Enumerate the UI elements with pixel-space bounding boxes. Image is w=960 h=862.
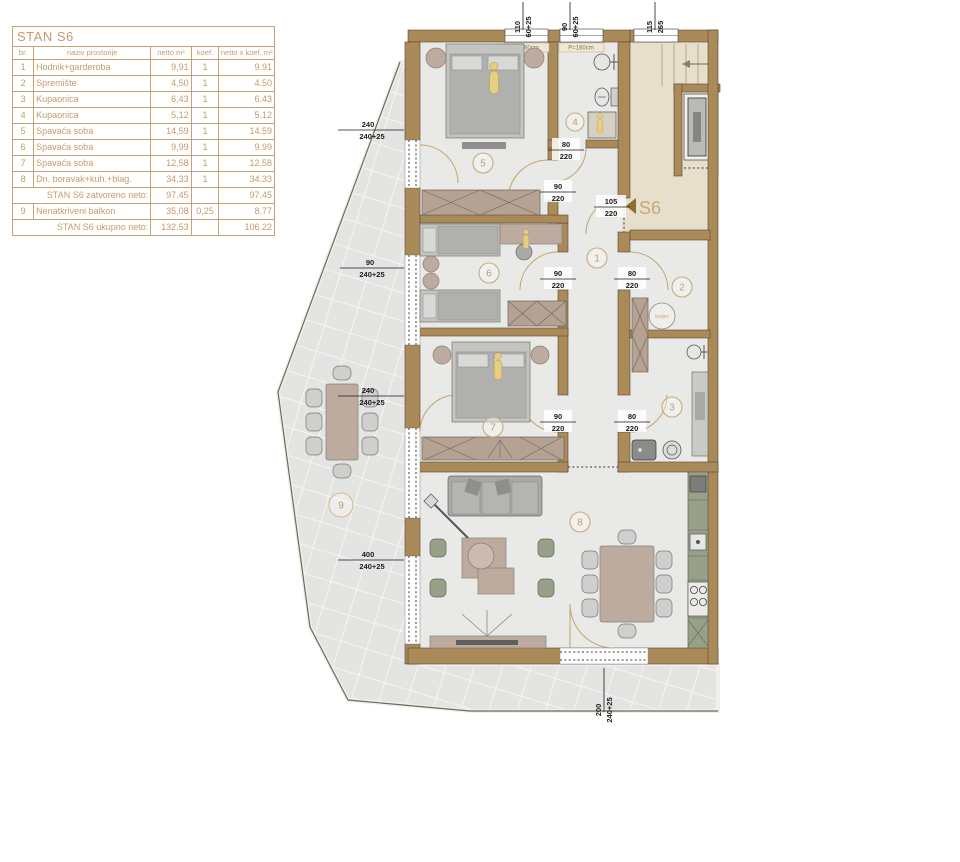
svg-text:240: 240 [362, 386, 375, 395]
toilet-icon [595, 88, 618, 106]
svg-text:110: 110 [513, 21, 522, 33]
kitchen-counter [688, 472, 708, 648]
svg-text:80: 80 [562, 140, 570, 149]
closet [632, 298, 648, 372]
nightstand [531, 346, 549, 364]
single-bed [420, 290, 500, 322]
svg-text:7: 7 [490, 423, 496, 434]
svg-text:80: 80 [628, 269, 636, 278]
svg-text:90: 90 [366, 258, 374, 267]
armchair [430, 579, 446, 597]
svg-text:240+25: 240+25 [359, 270, 384, 279]
sliding-door-living [405, 556, 420, 644]
svg-text:6: 6 [486, 269, 492, 280]
dim-label: 80 220 [614, 410, 650, 433]
svg-text:220: 220 [605, 209, 618, 218]
svg-text:80: 80 [628, 412, 636, 421]
svg-text:90: 90 [560, 23, 569, 31]
svg-text:400: 400 [362, 550, 375, 559]
svg-text:240+25: 240+25 [359, 132, 384, 141]
room-number-6: 6 [479, 263, 499, 283]
floor-plan-drawing: 9 [0, 0, 960, 862]
svg-text:90: 90 [554, 412, 562, 421]
svg-text:200: 200 [594, 704, 603, 717]
svg-text:220: 220 [552, 194, 565, 203]
wardrobe [422, 190, 540, 215]
sofa [448, 476, 542, 516]
svg-text:220: 220 [626, 424, 639, 433]
svg-text:60+25: 60+25 [571, 16, 580, 37]
svg-text:4: 4 [572, 118, 578, 129]
svg-text:5: 5 [480, 159, 486, 170]
room-number-7: 7 [483, 417, 503, 437]
nightstand [426, 48, 446, 68]
elevator-door-icon [693, 112, 701, 142]
person-figure-icon [494, 353, 502, 380]
floor-plan-page: STAN S6 br. naziv prostorije netto m² ko… [0, 0, 960, 862]
dim-label: 90 220 [540, 267, 576, 290]
stove-icon [688, 582, 708, 616]
svg-text:220: 220 [560, 152, 573, 161]
svg-text:9: 9 [338, 501, 344, 512]
svg-text:220: 220 [626, 281, 639, 290]
dim-label: 90 220 [540, 410, 576, 433]
entrance-label: S6 [639, 198, 661, 218]
sliding-door-bottom [560, 648, 648, 664]
window-size-label: P=160cm [568, 46, 594, 52]
dim-label: 90 220 [540, 180, 576, 203]
washbasin-icon [594, 54, 618, 70]
washing-machine-icon [663, 441, 681, 459]
window-top-2: P=160cm [559, 29, 604, 52]
dim-label: 105 220 [594, 195, 630, 218]
desk [500, 224, 562, 244]
svg-text:3: 3 [669, 403, 675, 414]
armchair [538, 579, 554, 597]
bench [462, 142, 506, 149]
double-bed [452, 342, 530, 422]
svg-text:1: 1 [594, 254, 600, 265]
svg-text:240+25: 240+25 [359, 562, 384, 571]
wardrobe [422, 437, 564, 460]
room-1-hallway: 1 [587, 248, 607, 268]
svg-text:115: 115 [645, 21, 654, 33]
shower-icon [632, 440, 656, 460]
dim-label: 80 220 [548, 138, 584, 161]
person-figure-icon [597, 114, 603, 134]
sink-icon [690, 534, 706, 550]
svg-text:220: 220 [552, 281, 565, 290]
person-figure-icon [490, 62, 499, 94]
window-left-room7 [405, 428, 420, 518]
wardrobe [508, 301, 566, 326]
armchair [538, 539, 554, 557]
svg-text:90: 90 [554, 182, 562, 191]
side-table [423, 273, 439, 289]
tv-icon [456, 640, 518, 645]
dim-label: 80 220 [614, 267, 650, 290]
window-left-room6 [405, 255, 420, 345]
svg-text:220: 220 [552, 424, 565, 433]
room-number-9: 9 [329, 493, 353, 517]
room-number-1: 1 [587, 248, 607, 268]
svg-text:bojler: bojler [655, 314, 669, 320]
bojler-icon: bojler [649, 303, 675, 329]
single-bed [420, 224, 500, 256]
dim-label: 115 265 [645, 2, 665, 33]
svg-text:240+25: 240+25 [605, 697, 614, 722]
room-number-2: 2 [672, 277, 692, 297]
side-table [423, 256, 439, 272]
room-number-5: 5 [473, 153, 493, 173]
svg-text:8: 8 [577, 518, 583, 529]
svg-text:2: 2 [679, 283, 685, 294]
svg-text:265: 265 [656, 21, 665, 34]
svg-text:240+25: 240+25 [359, 398, 384, 407]
window-left-room5 [405, 140, 420, 188]
double-bed [446, 44, 524, 138]
person-figure-icon [523, 230, 528, 249]
svg-text:240: 240 [362, 120, 375, 129]
cabinet-detail [695, 392, 705, 420]
armchair [430, 539, 446, 557]
room-number-4: 4 [566, 113, 584, 131]
room-number-3: 3 [662, 397, 682, 417]
svg-text:60+25: 60+25 [524, 16, 533, 37]
svg-text:105: 105 [605, 197, 618, 206]
svg-text:90: 90 [554, 269, 562, 278]
nightstand [524, 48, 544, 68]
room-number-8: 8 [570, 512, 590, 532]
nightstand [433, 346, 451, 364]
fridge-icon [690, 476, 706, 492]
